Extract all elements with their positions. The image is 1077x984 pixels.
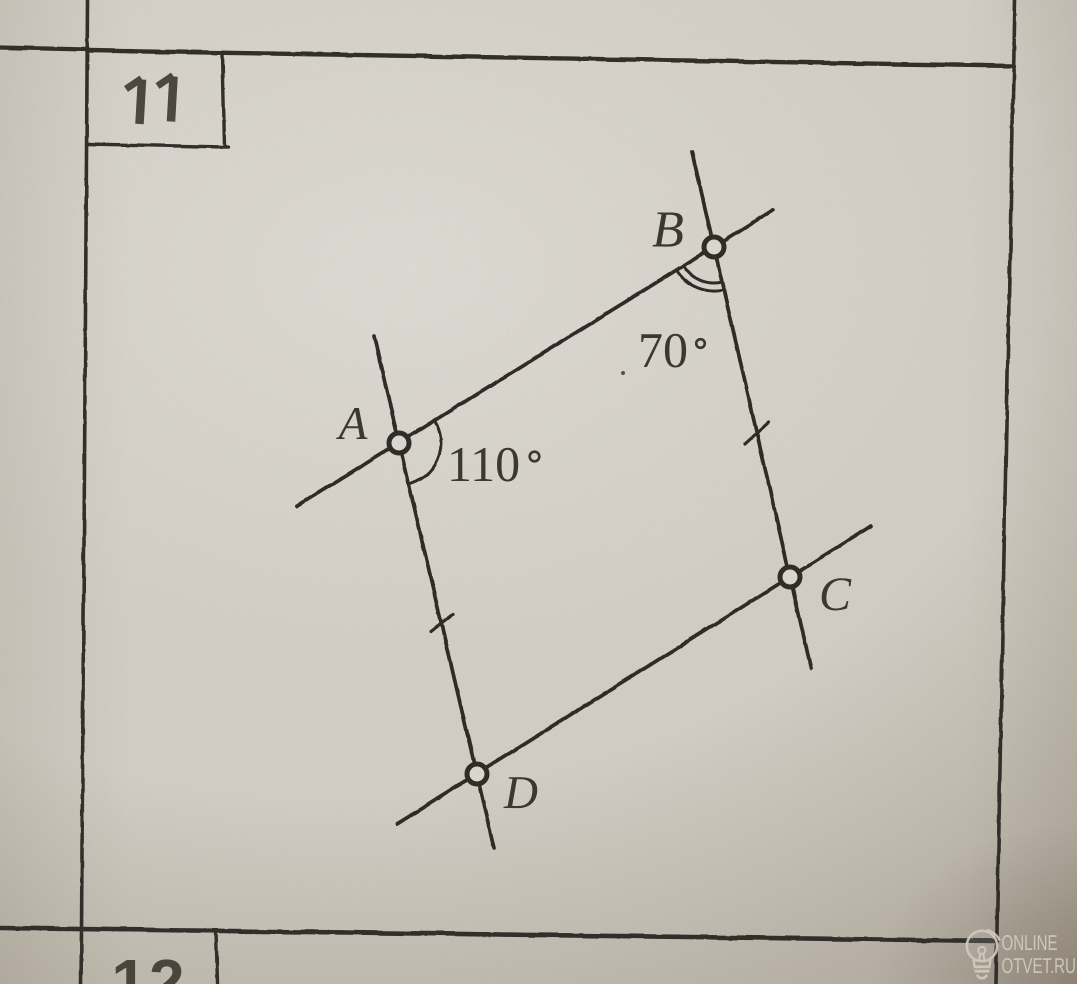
svg-text:C: C (819, 568, 852, 621)
svg-text:B: B (652, 202, 684, 259)
svg-text:12: 12 (111, 946, 186, 984)
svg-text:70: 70 (638, 322, 688, 378)
svg-text:D: D (503, 767, 538, 819)
svg-text:110: 110 (447, 436, 520, 492)
svg-text:A: A (336, 398, 368, 450)
svg-text:OTVET.RU: OTVET.RU (1002, 954, 1076, 978)
svg-text:ONLINE: ONLINE (1002, 931, 1058, 955)
